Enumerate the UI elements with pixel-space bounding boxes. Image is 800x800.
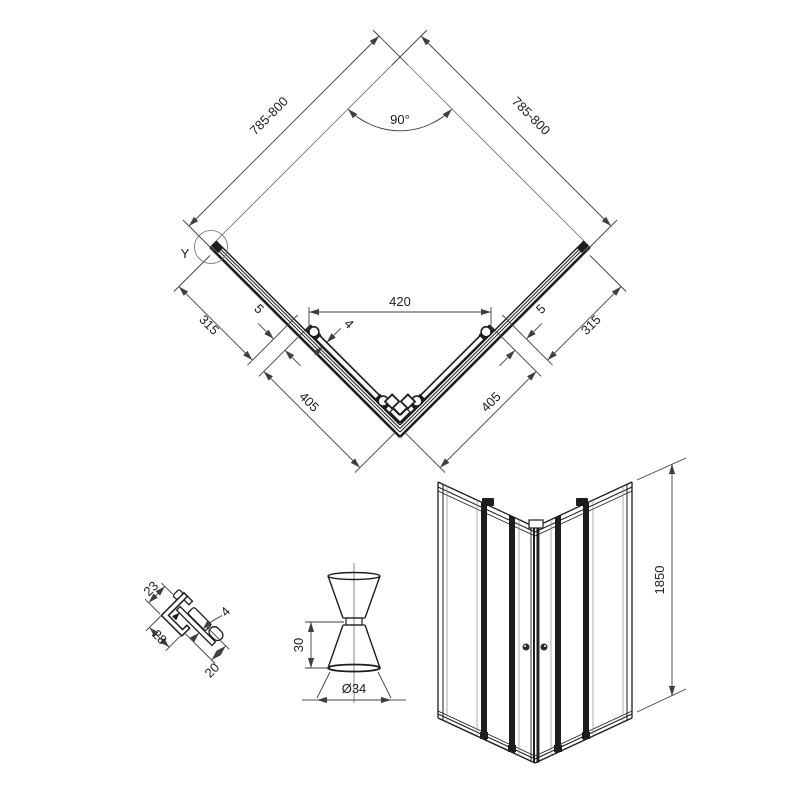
front-left-panel (438, 482, 535, 763)
dim-angle: 90° (390, 112, 410, 127)
post-cap (529, 520, 543, 528)
opening-dimension (309, 307, 491, 331)
front-dim-height: 1850 (652, 566, 667, 595)
plan-right-half (392, 30, 626, 473)
detail-y-view: 23 28 20 4 (120, 555, 255, 690)
door-guide (480, 732, 488, 739)
door-knob (523, 644, 530, 651)
dim-side-left: 785-800 (247, 94, 291, 138)
plan-left-half (174, 30, 408, 473)
detail-dim-bottom: 20 (202, 660, 223, 681)
door-knob-highlight (524, 645, 526, 647)
front-view: 1850 (438, 458, 686, 763)
dim-panel-right: 315 (578, 312, 604, 338)
door-guide (508, 745, 516, 752)
dim-panel-left: 315 (196, 312, 222, 338)
detail-dim-side: 28 (149, 627, 170, 648)
knob-dim-height: 30 (291, 638, 306, 652)
side-dimensions (174, 30, 408, 473)
roller-wheel (309, 327, 319, 337)
detail-dim-top: 23 (140, 578, 161, 599)
entry-edge (210, 57, 400, 247)
knob-dim-diameter: Ø34 (342, 681, 367, 696)
plan-view: Y 785-800 785-800 90° 420 315 5 405 4 31… (174, 30, 626, 473)
dim-gap-right: 5 (533, 301, 549, 317)
door-stile (509, 515, 515, 754)
dim-door-left: 405 (296, 389, 322, 415)
dim-glass-thickness: 4 (341, 316, 357, 332)
shower-enclosure-drawing: Y 785-800 785-800 90° 420 315 5 405 4 31… (0, 0, 800, 800)
door-hanger (482, 498, 494, 506)
technical-drawing-sheet: Y 785-800 785-800 90° 420 315 5 405 4 31… (0, 0, 800, 800)
dim-gap-left: 5 (251, 301, 267, 317)
detail-callout-label: Y (181, 246, 190, 261)
front-right-panel (535, 482, 632, 763)
dim-opening: 420 (389, 294, 411, 309)
dim-door-right: 405 (478, 389, 504, 415)
door-stile (481, 502, 487, 741)
knob-view: 30 Ø34 (291, 563, 406, 703)
dim-side-right: 785-800 (509, 94, 553, 138)
sliding-door-profile (305, 324, 400, 422)
